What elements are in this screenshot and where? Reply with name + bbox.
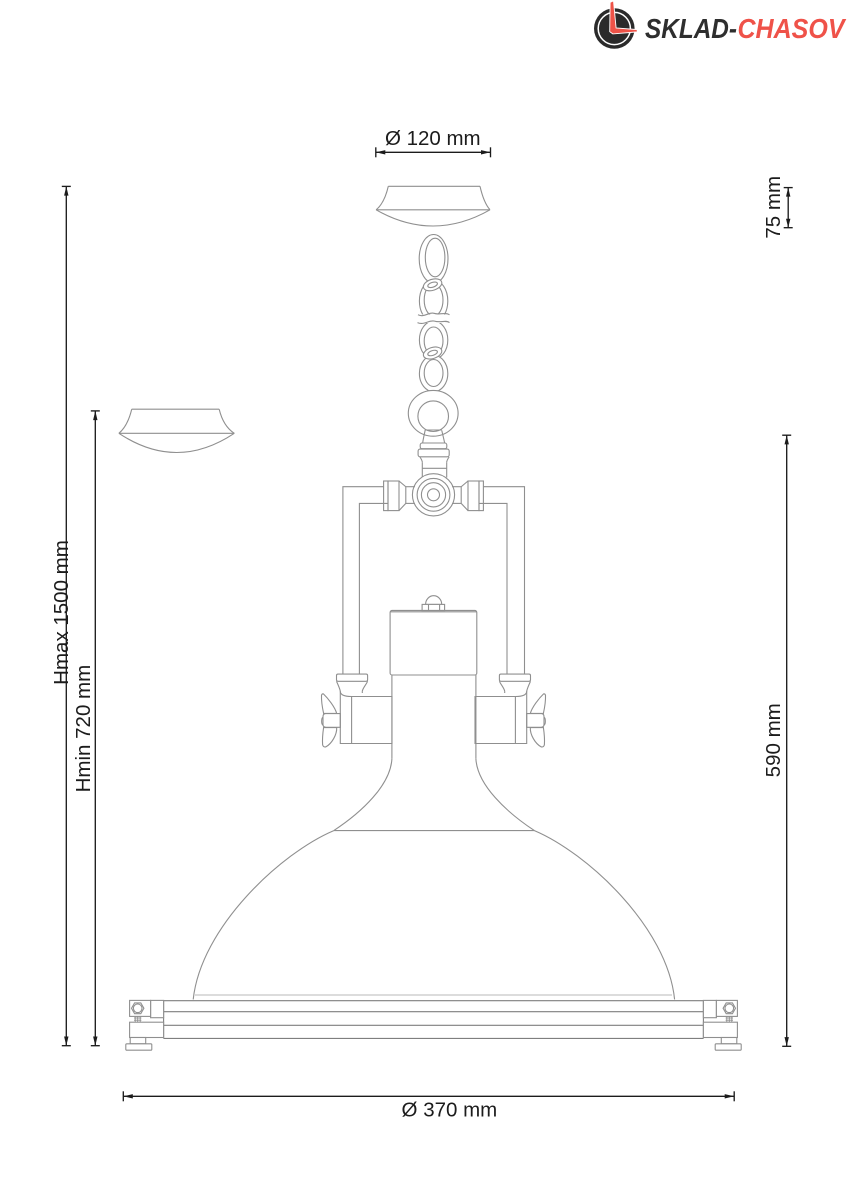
svg-text:Ø 370 mm: Ø 370 mm bbox=[402, 1098, 498, 1121]
svg-text:CHASOV: CHASOV bbox=[738, 13, 847, 44]
svg-text:Ø 120 mm: Ø 120 mm bbox=[385, 127, 481, 150]
svg-text:75 mm: 75 mm bbox=[762, 176, 785, 239]
svg-text:SKLAD-: SKLAD- bbox=[645, 13, 737, 44]
svg-text:Hmin 720 mm: Hmin 720 mm bbox=[72, 665, 95, 793]
svg-text:Hmax 1500 mm: Hmax 1500 mm bbox=[50, 540, 73, 685]
svg-text:590 mm: 590 mm bbox=[762, 703, 785, 777]
